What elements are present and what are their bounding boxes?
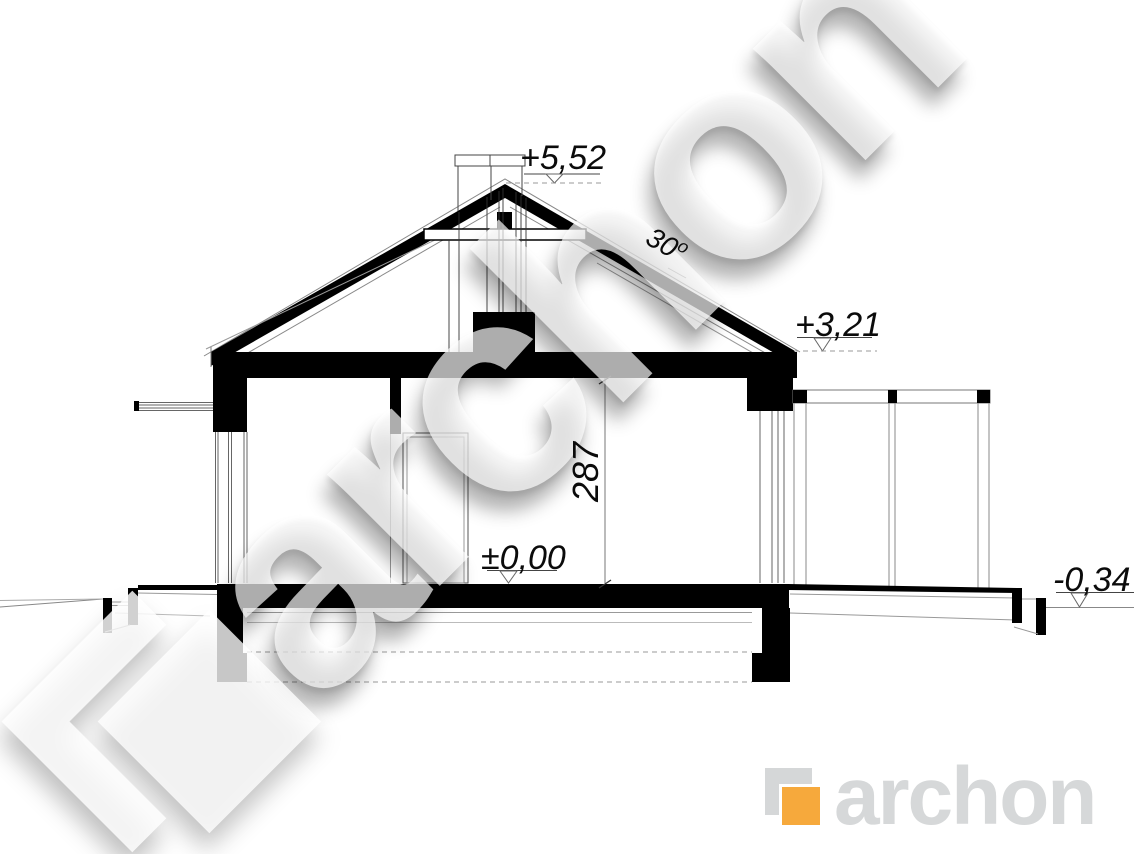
room-height-label: 287 — [565, 427, 605, 517]
logo-text: archon — [834, 756, 1095, 838]
chimney — [449, 155, 535, 352]
ridge-level-label: +5,52 — [520, 139, 606, 178]
walls-and-ceiling — [213, 352, 797, 434]
wall-plate-level-label: +3,21 — [795, 306, 881, 345]
floor-foundation — [217, 584, 790, 682]
archon-logo: archon — [762, 760, 1122, 840]
floor-level-label: ±0,00 — [481, 539, 566, 578]
logo-orange-square-icon — [782, 787, 820, 825]
architectural-section-page: archon +5,52 30o +3,21 287 ±0,00 -0,34 a… — [0, 0, 1141, 854]
site-left — [0, 585, 217, 633]
terrain-level-label: -0,34 — [1053, 561, 1131, 600]
